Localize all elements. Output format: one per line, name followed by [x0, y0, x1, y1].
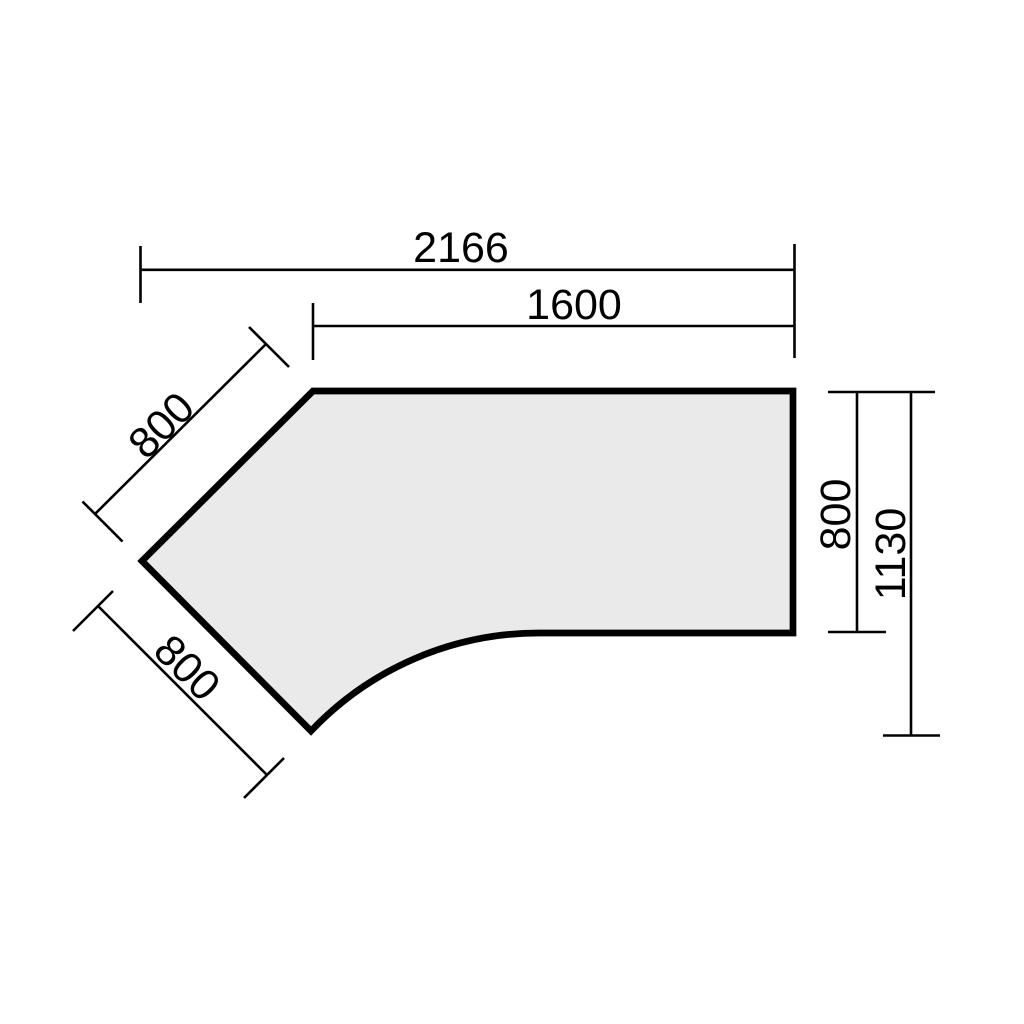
svg-text:2166: 2166 [413, 224, 509, 272]
svg-text:1130: 1130 [867, 508, 915, 600]
svg-text:800: 800 [119, 383, 204, 468]
svg-text:1600: 1600 [526, 281, 622, 329]
svg-text:800: 800 [812, 479, 860, 551]
